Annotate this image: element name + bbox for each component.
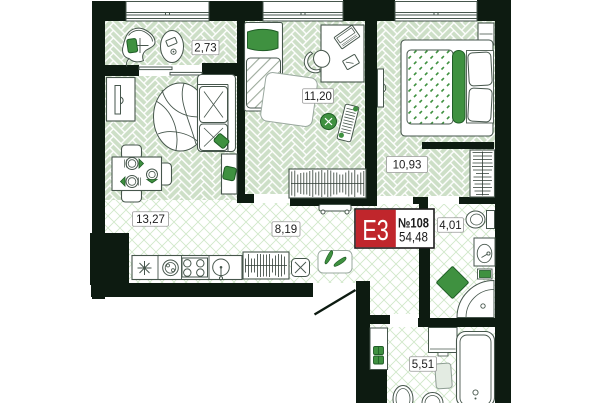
svg-text:№108: №108	[398, 215, 429, 230]
svg-text:13,27: 13,27	[136, 214, 165, 226]
svg-text:11,20: 11,20	[304, 91, 332, 103]
svg-text:5,51: 5,51	[412, 359, 434, 371]
svg-text:E3: E3	[362, 215, 389, 247]
svg-text:54,48: 54,48	[399, 230, 428, 245]
svg-text:8,19: 8,19	[275, 224, 297, 236]
svg-text:2,73: 2,73	[194, 43, 216, 55]
svg-text:4,01: 4,01	[439, 220, 461, 232]
svg-text:10,93: 10,93	[393, 160, 422, 172]
